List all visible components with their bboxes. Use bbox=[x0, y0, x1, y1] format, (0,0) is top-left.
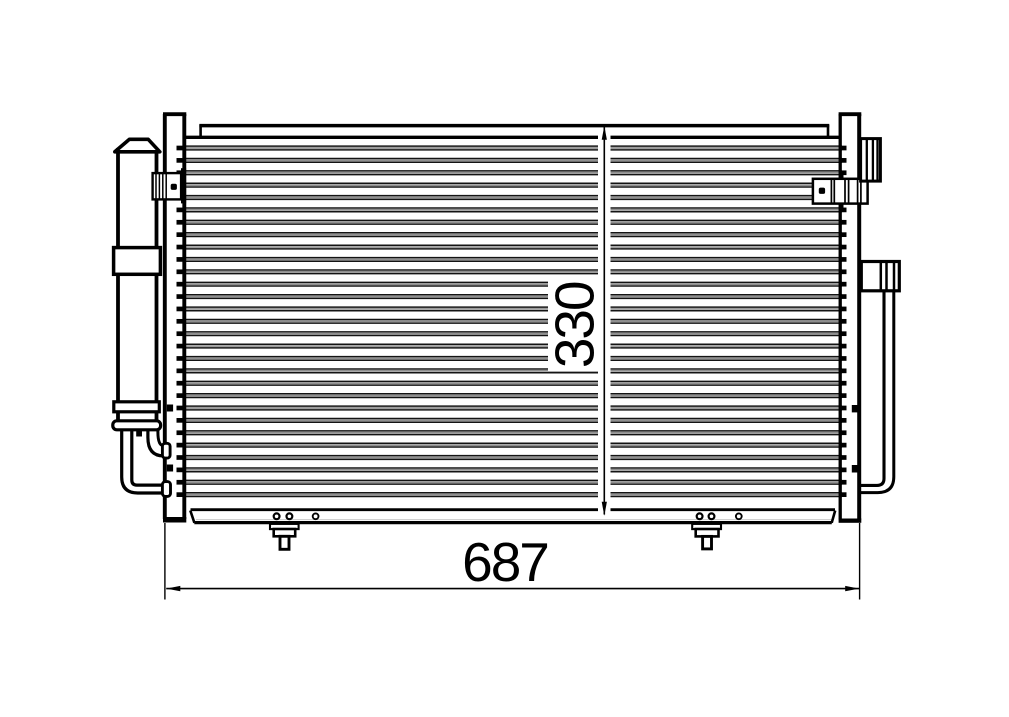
svg-text:330: 330 bbox=[543, 282, 605, 368]
svg-text:687: 687 bbox=[462, 531, 548, 593]
